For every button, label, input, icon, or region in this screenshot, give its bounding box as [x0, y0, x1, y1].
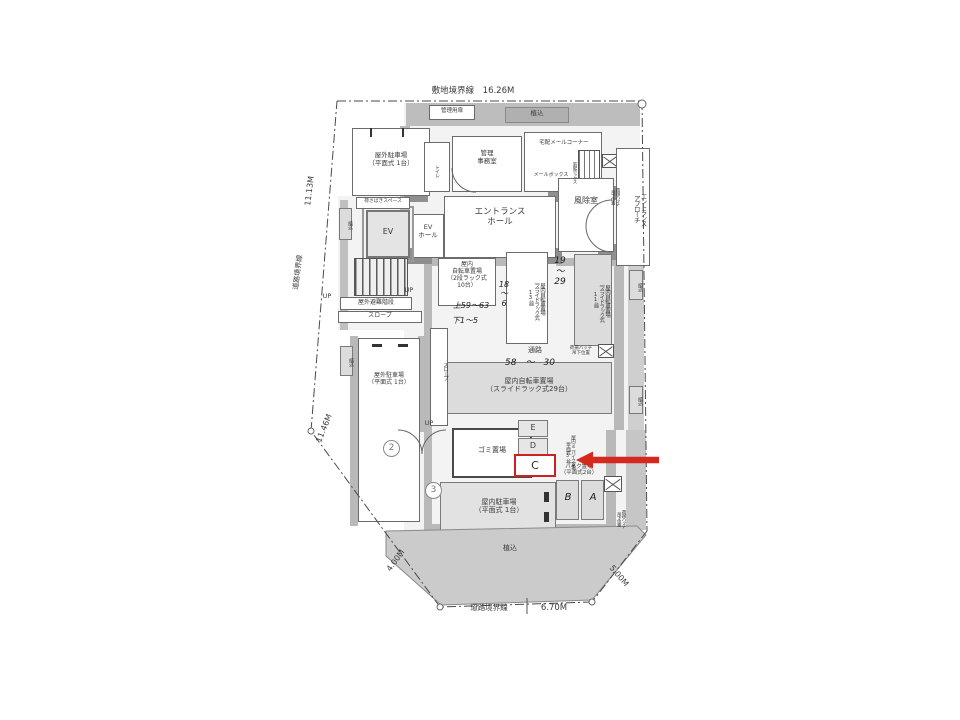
- label-slope-v: スロープ: [432, 340, 447, 402]
- parking-tick: [544, 492, 549, 502]
- room-outdoor-parking-w: 屋外駐車場 （平面式 1台）: [360, 372, 418, 386]
- room-bike-rack13: 屋内自転車置場 （スライドラック式 13台）: [510, 257, 544, 341]
- label-bike-parking: バイク置場 （平面式2台）: [550, 464, 608, 477]
- hatch-symbol: [604, 476, 622, 492]
- hatch-symbol: [598, 344, 614, 358]
- parking-tick: [544, 512, 549, 522]
- wall: [614, 264, 624, 430]
- cell-B: B: [558, 492, 578, 504]
- label-hatch-mid: 荷揚ハッチ 吊下位置: [564, 346, 598, 357]
- dim-11-46: 11.46M: [312, 406, 337, 450]
- marker-2: 2: [383, 440, 400, 457]
- label-planting-bottom: 植込: [490, 544, 530, 552]
- parking-tick: [372, 344, 382, 347]
- cell-E: E: [520, 423, 546, 432]
- label-road-boundary-left: 道路境界線: [291, 248, 305, 297]
- dim-11-13: 11.13M: [302, 168, 317, 213]
- label-planting-top: 植込: [505, 110, 569, 118]
- label-up-1: UP: [318, 293, 336, 301]
- room-entrance-hall: エントランス ホール: [452, 207, 548, 227]
- parking-tick: [398, 344, 408, 347]
- cell-D: D: [520, 441, 546, 450]
- hand-19-29: 19 〜 29: [549, 256, 571, 288]
- floor-plan-page: C 敷地境界線 16.26M管理用扉植込屋: [0, 0, 960, 720]
- room-garbage: ゴミ置場: [460, 446, 524, 454]
- room-bike-rack11: 屋内自転車置場 （スライドラック式 11台）: [577, 259, 609, 343]
- label-up-2: UP: [400, 287, 418, 295]
- label-planting-left-mid: 植込: [341, 348, 353, 375]
- room-indoor-parking: 屋内駐車場 （平面式 1台）: [458, 498, 540, 515]
- room-ev: EV: [372, 227, 404, 236]
- room-bike-rack29: 屋内自転車置場 （スライドラック式29台）: [462, 377, 596, 394]
- dim-5-00: 5.00M: [602, 558, 635, 595]
- label-loading-space: 荷さばきスペース: [357, 199, 409, 205]
- dim-6-70: 6.70M: [532, 603, 576, 613]
- label-slope-h: スロープ: [350, 312, 410, 319]
- cell-A: A: [583, 492, 603, 504]
- label-entrance-approach: エントランス アプローチ: [619, 158, 646, 260]
- wall: [424, 430, 432, 530]
- label-up-3: UP: [420, 420, 438, 428]
- label-delivery-corner: 宅配メールコーナー: [524, 140, 604, 146]
- label-planting-right-1: 植込: [630, 273, 642, 300]
- room-windbreak: 風除室: [562, 196, 610, 205]
- label-hatch-bottom: 荷揚ハッチ 吊下位置: [608, 498, 625, 540]
- label-planting-left-up: 植込: [340, 211, 352, 239]
- hand-lower-1-5: 下1〜5: [442, 316, 488, 325]
- dim-4-00: 4.00M: [380, 542, 411, 580]
- room-ev-hall: EV ホール: [413, 224, 443, 239]
- planting-strip: [626, 430, 646, 530]
- marker-3: 3: [425, 482, 442, 499]
- room-bike-rack10: 屋内 自転車置場 （2段ラック式 10台）: [440, 261, 494, 289]
- label-toilet: トイレ: [427, 156, 439, 186]
- hand-18-6: 18 〜 6: [495, 280, 513, 308]
- label-planting-right-2: 植込: [630, 388, 642, 414]
- hand-upper-59-63: 上59〜63: [444, 301, 498, 310]
- room-outdoor-parking-nw: 屋外駐車場 （平面式 1台）: [356, 152, 426, 167]
- room-office: 管理 事務室: [462, 150, 512, 165]
- label-mgmt-door: 管理用扉: [431, 108, 473, 114]
- hand-58-30: 58 〜 30: [492, 358, 568, 369]
- label-evac-stairs: 屋外避難階段: [341, 299, 411, 306]
- parking-tick: [370, 128, 372, 137]
- label-road-boundary-bottom: 道路境界線: [460, 604, 518, 613]
- cell-C-label: C: [531, 459, 539, 472]
- label-minibike: 屋内ミニバイク置場 （平面式3台）: [551, 416, 575, 488]
- parking-tick: [402, 128, 404, 137]
- dim-site-boundary-top: 敷地境界線 16.26M: [408, 86, 538, 96]
- label-corridor: 通路: [515, 346, 555, 354]
- label-delivery-box: 宅配ボックス: [562, 153, 576, 191]
- room-outdoor-parking-w: [358, 338, 420, 522]
- highlight-box: C: [514, 454, 556, 477]
